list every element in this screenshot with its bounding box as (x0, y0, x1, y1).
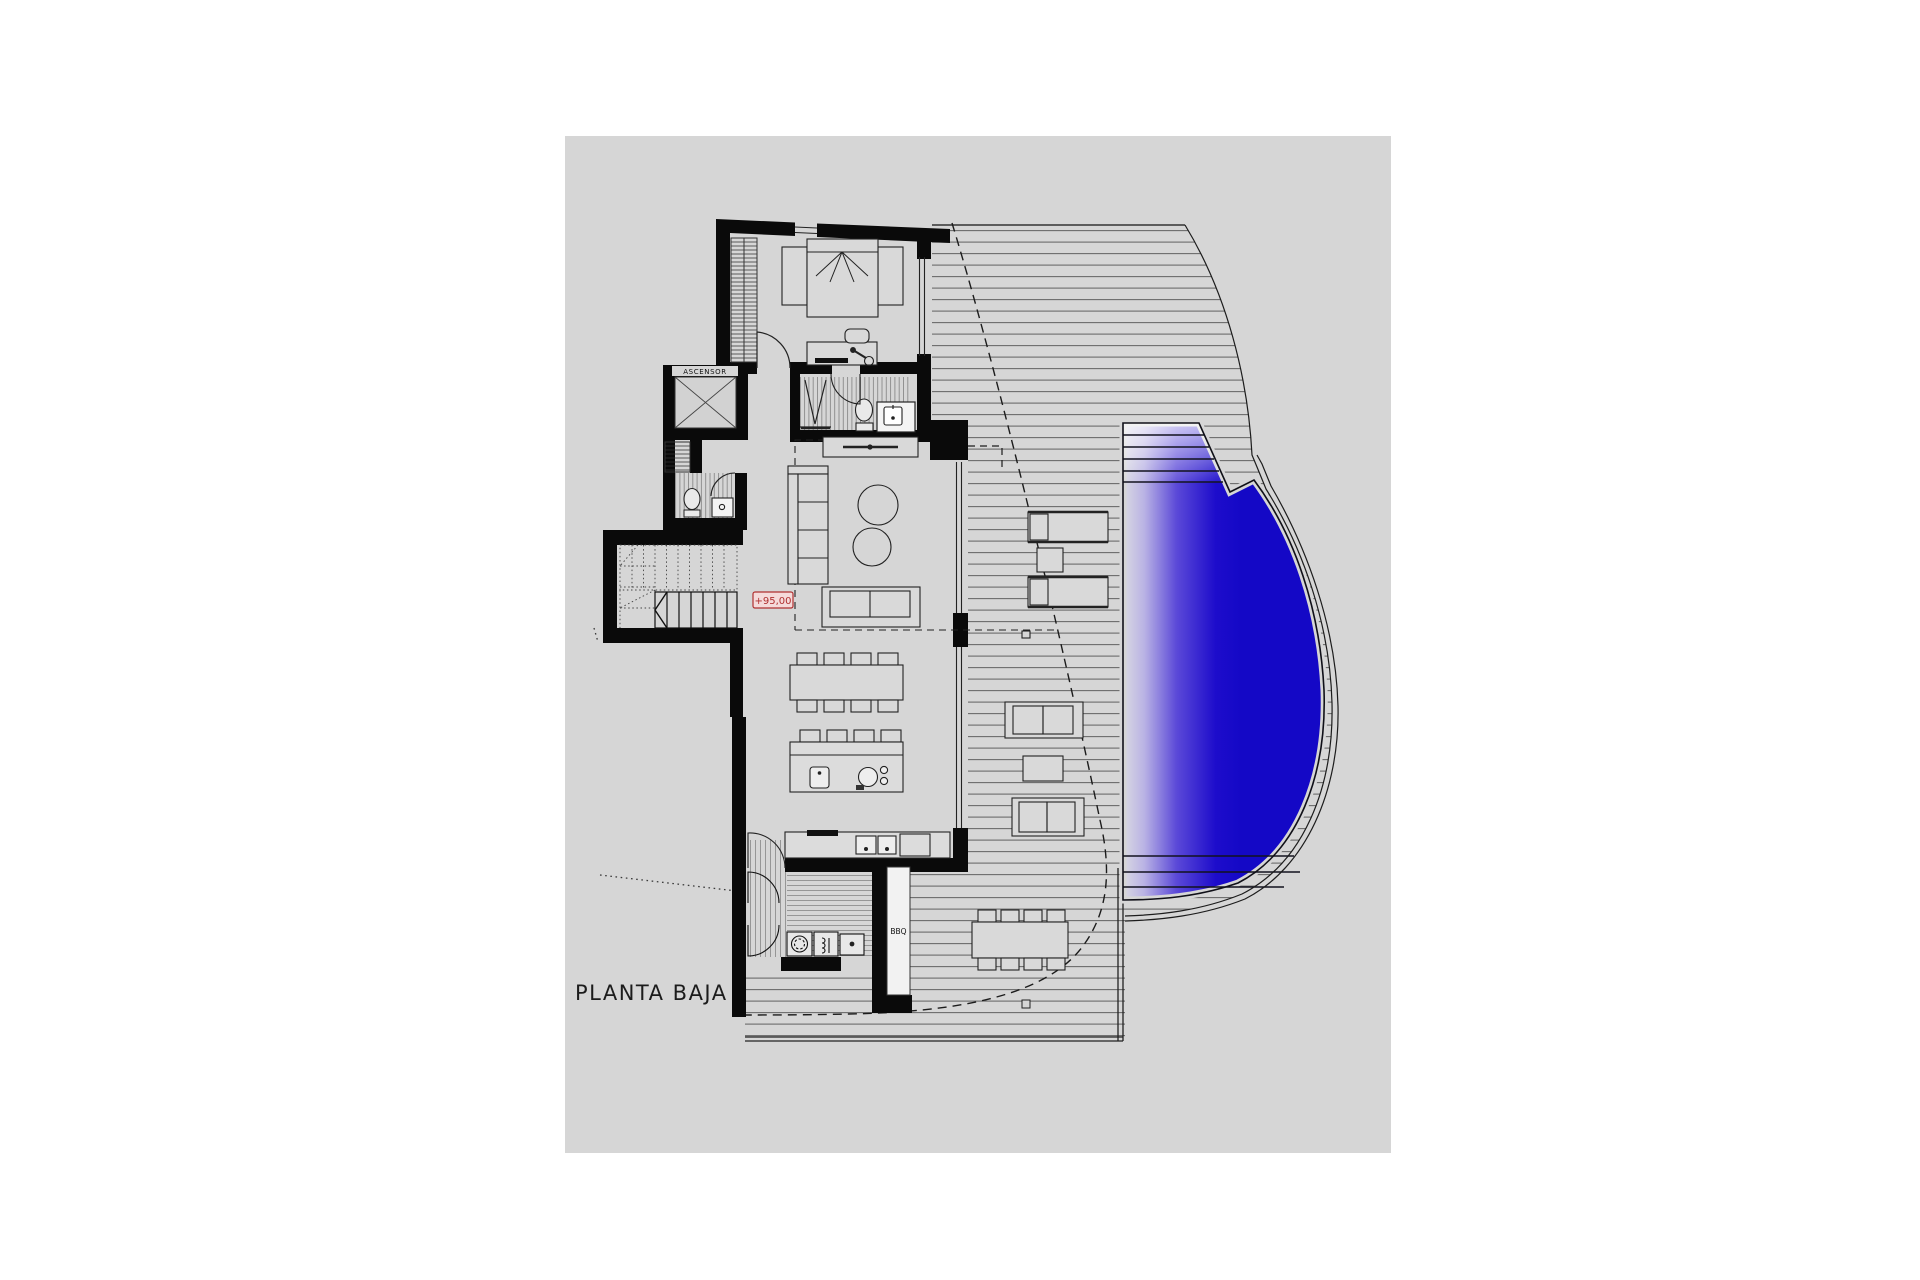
outdoor-dining-table (972, 922, 1068, 958)
section-marker-square (1022, 1000, 1030, 1008)
counter-sink-1 (856, 836, 876, 854)
nightstand-left (782, 247, 807, 305)
desk-chair (845, 329, 869, 343)
island-sink (810, 767, 829, 788)
cooktop-burner-2 (880, 777, 887, 784)
bedroom-threshold (815, 358, 848, 363)
sofa-l-arm-top (788, 466, 828, 474)
outdoor-sofa-2 (1012, 798, 1084, 836)
counter-sink-2-drain (885, 847, 889, 851)
sofa-2 (822, 587, 920, 627)
cooktop-burner-1 (880, 766, 887, 773)
wall-bedroom-right-lower (917, 358, 931, 442)
wall-bath-pier (790, 374, 800, 432)
outdoor-chair (1024, 958, 1042, 970)
outdoor-chair (1001, 910, 1019, 922)
outdoor-sofa-1 (1005, 702, 1083, 738)
level-marker: +95,00 (753, 592, 793, 608)
island-stool (800, 730, 820, 742)
guest-sink (712, 498, 733, 517)
dining-chair (824, 653, 844, 665)
wall-stairs-top (603, 530, 743, 545)
bbq-area: BBQ (887, 867, 910, 995)
laundry-sink-drain (850, 942, 855, 947)
bed (807, 239, 878, 317)
guest-toilet (684, 489, 700, 510)
nightstand-right (878, 247, 903, 305)
round-side-table-1 (858, 485, 898, 525)
wall-guestbath-right (735, 473, 747, 518)
dining-table (790, 665, 903, 700)
bbq-label: BBQ (890, 927, 906, 936)
sun-lounger-1 (1028, 512, 1108, 542)
wall-stairs-left (603, 530, 617, 643)
vanity-sink (884, 407, 902, 425)
wall-bbq-west (872, 863, 887, 997)
desk-lamp-base (851, 348, 856, 353)
round-side-table-2 (853, 528, 891, 566)
sun-lounger-2 (1028, 577, 1108, 607)
outdoor-chair (978, 958, 996, 970)
counter-sink-2 (878, 836, 896, 854)
wall-elevator-right (736, 377, 748, 428)
island-sink-drain (818, 771, 822, 775)
tv-dot (867, 444, 872, 449)
dining-chair (878, 700, 898, 712)
outdoor-chair (1047, 910, 1065, 922)
dining-chair (878, 653, 898, 665)
dining-chair (851, 700, 871, 712)
toilet-tank (856, 423, 873, 431)
cooktop (859, 768, 878, 787)
cooktop-control (856, 785, 864, 790)
counter-hob-strip (807, 830, 838, 836)
lounger-side-table (1037, 548, 1063, 572)
guest-toilet-tank (684, 510, 700, 517)
elevator-label: ASCENSOR (683, 368, 726, 376)
wall-bbq-stub (872, 995, 912, 1013)
dining-chair (851, 653, 871, 665)
dining-chair (797, 700, 817, 712)
sofa-l-seat (798, 474, 828, 584)
wall-ne-corner-chunk (930, 420, 968, 460)
entry-corridor-floor (748, 840, 786, 957)
dryer (814, 932, 838, 956)
island-stool (881, 730, 901, 742)
wall-laundry-south (781, 957, 841, 971)
floor-plan-drawing: ASCENSOR +95,00 (0, 0, 1920, 1280)
counter-sink-1-drain (864, 847, 868, 851)
wall-west-stub (730, 643, 743, 717)
wall-elevator-bottom (663, 428, 748, 440)
outdoor-chair (1047, 958, 1065, 970)
wall-bedroom-left (716, 233, 730, 367)
dining-chair (797, 653, 817, 665)
wall-bedroom-right-upper (917, 231, 931, 257)
wall-stairs-bottom (603, 628, 743, 643)
dining-chair (824, 700, 844, 712)
wall-west-long (732, 717, 746, 1017)
outdoor-chair (978, 910, 996, 922)
floor-plan-page: ASCENSOR +95,00 (0, 0, 1920, 1280)
wall-guestbath-bottom (663, 518, 747, 530)
toilet (856, 399, 873, 421)
outdoor-chair (1001, 958, 1019, 970)
sofa-l-back (788, 474, 798, 584)
island-stool (854, 730, 874, 742)
island-stool (827, 730, 847, 742)
wall-closet-right (690, 440, 702, 473)
floor-title: PLANTA BAJA (575, 981, 728, 1005)
outdoor-coffee-table (1023, 756, 1063, 781)
level-marker-text: +95,00 (754, 596, 791, 607)
section-marker-square-2 (1022, 631, 1030, 638)
outdoor-chair (1024, 910, 1042, 922)
vanity-drain (891, 416, 895, 420)
elevator: ASCENSOR (672, 366, 738, 428)
